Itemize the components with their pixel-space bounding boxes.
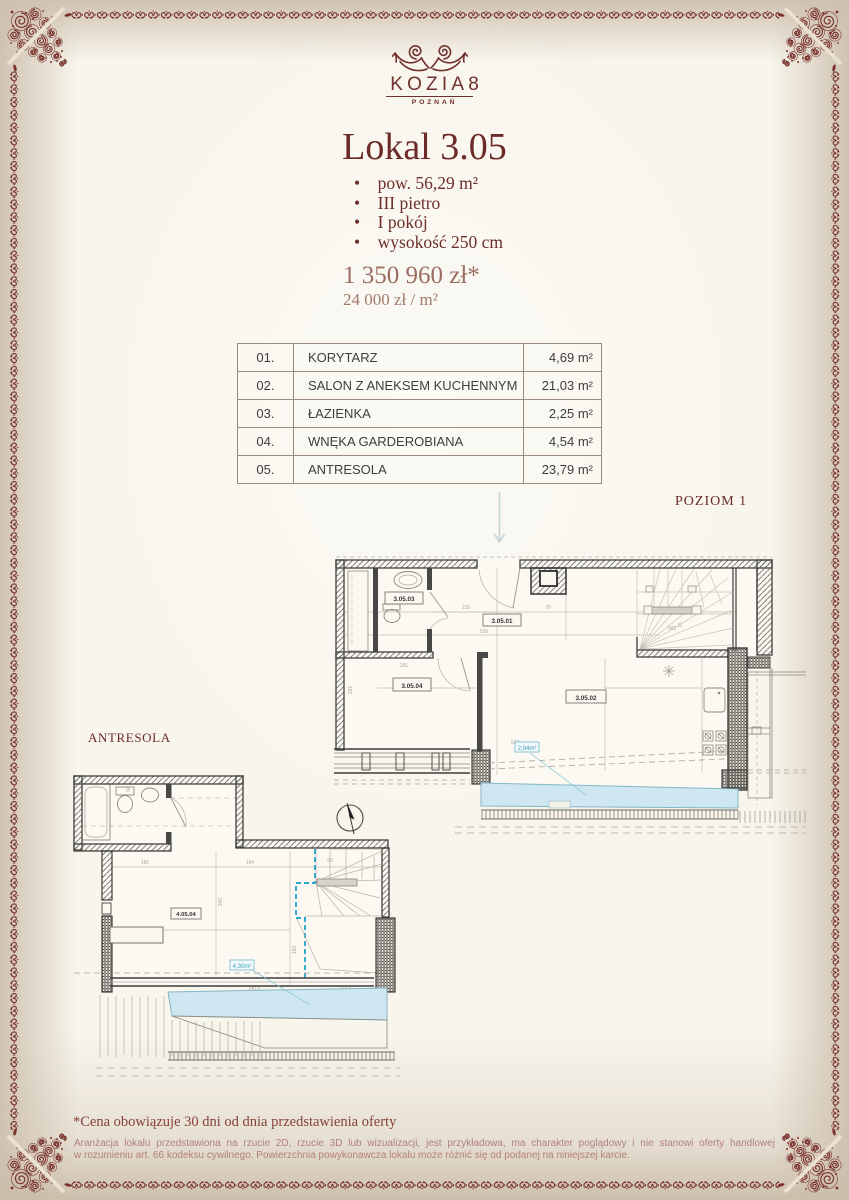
svg-text:4,30m²: 4,30m²	[233, 964, 252, 970]
svg-text:4.05.04: 4.05.04	[176, 912, 196, 918]
svg-text:281: 281	[400, 663, 409, 669]
svg-text:381: 381	[348, 686, 354, 695]
svg-text:180: 180	[141, 860, 150, 866]
svg-text:180: 180	[292, 946, 298, 955]
svg-text:76: 76	[545, 605, 551, 611]
svg-text:526: 526	[480, 629, 489, 635]
svg-text:225: 225	[462, 605, 471, 611]
svg-text:345: 345	[218, 898, 224, 907]
svg-text:3.05.04: 3.05.04	[401, 683, 423, 690]
svg-text:164: 164	[246, 860, 255, 866]
svg-text:3.05.01: 3.05.01	[491, 618, 513, 625]
svg-text:2,94m²: 2,94m²	[518, 746, 537, 752]
svg-text:3.05.03: 3.05.03	[393, 596, 415, 603]
svg-text:3.05.02: 3.05.02	[575, 695, 597, 702]
